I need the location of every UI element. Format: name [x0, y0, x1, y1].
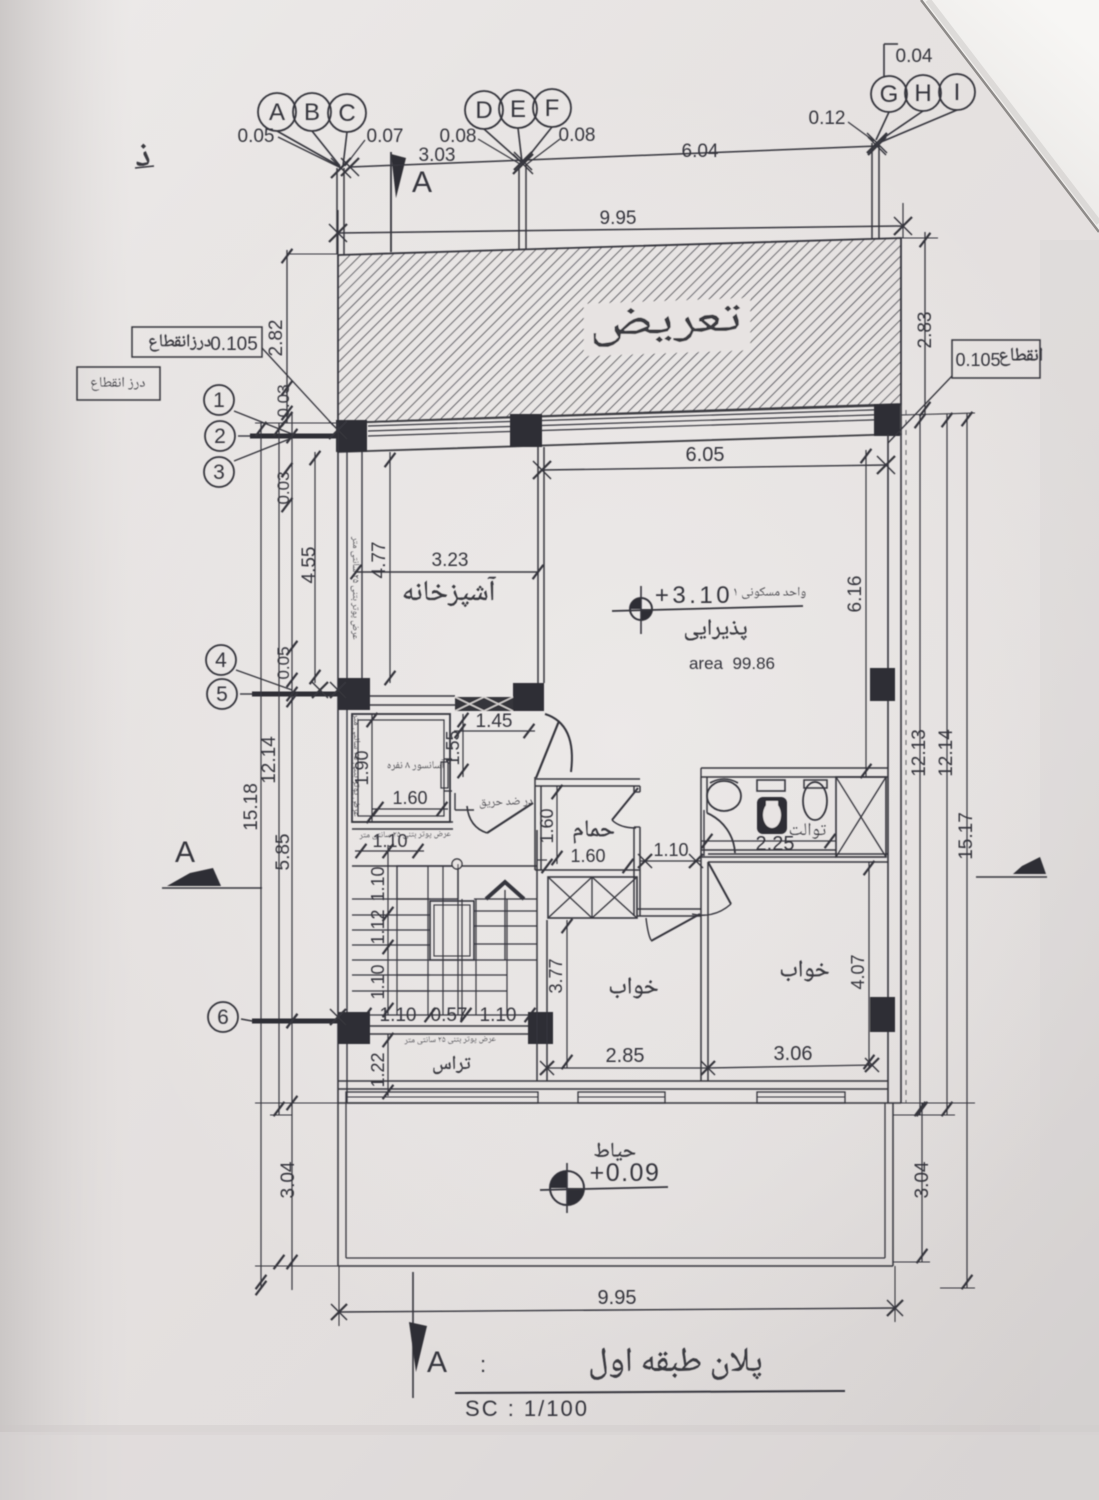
svg-text:15.17: 15.17 [956, 812, 977, 860]
svg-text:0.105: 0.105 [210, 334, 258, 355]
svg-text:15.18: 15.18 [241, 783, 262, 831]
svg-text:6: 6 [217, 1006, 229, 1029]
svg-text:C: C [338, 100, 355, 127]
svg-text:3: 3 [213, 461, 225, 484]
svg-text:1.60: 1.60 [392, 788, 427, 808]
svg-text:1.55: 1.55 [443, 730, 463, 765]
svg-text:5: 5 [216, 683, 228, 706]
svg-text:3.04: 3.04 [278, 1161, 299, 1198]
svg-text:+0.09: +0.09 [590, 1159, 661, 1187]
svg-text:9.95: 9.95 [598, 1287, 637, 1309]
svg-text:1.10: 1.10 [368, 866, 388, 901]
svg-text:4.55: 4.55 [299, 547, 320, 584]
svg-text:0.05: 0.05 [238, 126, 275, 147]
svg-text:1.90: 1.90 [352, 750, 372, 785]
svg-text:2.25: 2.25 [756, 833, 795, 855]
svg-text:4.77: 4.77 [369, 542, 390, 579]
svg-text:6.05: 6.05 [686, 444, 725, 466]
svg-text:0.12: 0.12 [809, 108, 846, 129]
svg-text:9.95: 9.95 [600, 208, 637, 229]
svg-text:1.10: 1.10 [380, 1005, 417, 1026]
svg-text:0.03: 0.03 [274, 384, 293, 417]
svg-text:A: A [427, 1346, 447, 1379]
svg-text:2: 2 [214, 425, 226, 448]
svg-text:3.77: 3.77 [546, 958, 566, 993]
svg-text:2.83: 2.83 [915, 312, 936, 349]
svg-text:area: area [689, 654, 724, 673]
svg-text:E: E [510, 96, 526, 123]
svg-text:1.10: 1.10 [368, 964, 388, 999]
svg-text:99.86: 99.86 [732, 654, 775, 673]
svg-text:4.07: 4.07 [848, 954, 868, 989]
svg-text:0.57: 0.57 [431, 1005, 468, 1026]
svg-text:B: B [304, 99, 320, 126]
svg-text:H: H [914, 80, 931, 107]
svg-text:5.85: 5.85 [273, 834, 294, 871]
svg-text:0.105: 0.105 [955, 350, 1000, 370]
svg-text:1: 1 [213, 389, 225, 412]
svg-text:2.82: 2.82 [266, 320, 287, 357]
svg-text:1.60: 1.60 [537, 808, 557, 843]
svg-text:1.12: 1.12 [368, 909, 388, 944]
svg-text:0.04: 0.04 [896, 46, 933, 67]
svg-text:1.22: 1.22 [368, 1052, 388, 1087]
svg-text:D: D [475, 97, 492, 124]
svg-text:A: A [175, 836, 195, 869]
svg-text:12.14: 12.14 [936, 729, 957, 777]
svg-text:0.07: 0.07 [367, 126, 404, 147]
svg-text:3.04: 3.04 [912, 1161, 933, 1198]
svg-text:3.23: 3.23 [432, 550, 469, 571]
svg-text:3.03: 3.03 [419, 145, 456, 166]
svg-text:+3.10: +3.10 [655, 582, 733, 609]
svg-text:4: 4 [215, 649, 227, 672]
svg-text:1.45: 1.45 [476, 711, 513, 732]
svg-text:0.08: 0.08 [440, 126, 477, 147]
svg-text:G: G [880, 81, 899, 108]
svg-text:A: A [269, 99, 285, 126]
svg-text:0.08: 0.08 [559, 125, 596, 146]
svg-text:6.04: 6.04 [682, 141, 719, 162]
svg-text::: : [480, 1352, 486, 1377]
svg-text:6.16: 6.16 [845, 576, 866, 613]
svg-text:A: A [412, 166, 432, 199]
svg-text:1.60: 1.60 [570, 846, 605, 866]
svg-text:12.13: 12.13 [909, 729, 930, 777]
svg-text:2.85: 2.85 [606, 1045, 645, 1067]
svg-text:1.10: 1.10 [653, 840, 688, 860]
svg-text:F: F [545, 95, 560, 122]
svg-text:12.14: 12.14 [259, 736, 280, 784]
svg-text:1.10: 1.10 [480, 1005, 517, 1026]
svg-text:SC : 1/100: SC : 1/100 [465, 1396, 589, 1421]
svg-text:3.06: 3.06 [774, 1043, 813, 1065]
svg-text:I: I [954, 79, 961, 106]
